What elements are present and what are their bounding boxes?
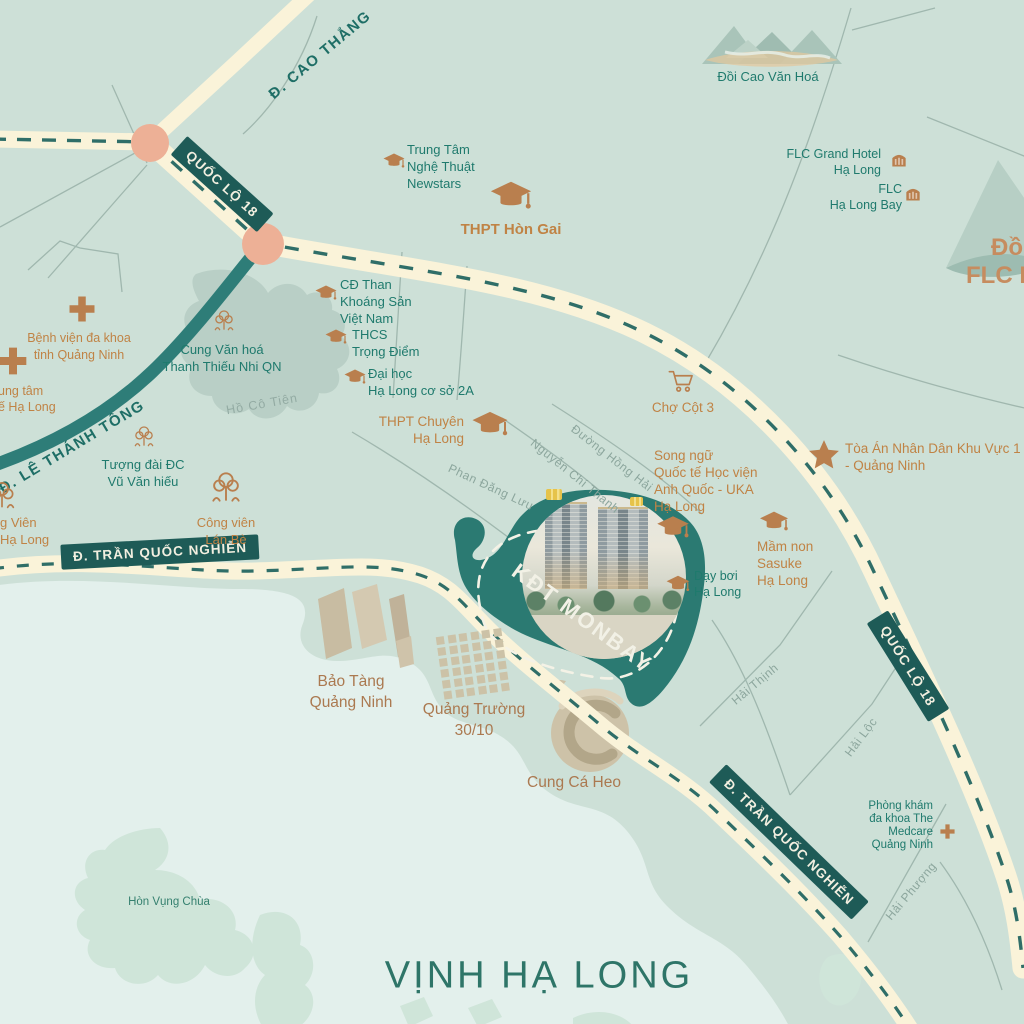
cung-van-hoa-thieu-nhi-label: Cung Văn hoáThanh Thiếu Nhi QN: [163, 341, 282, 375]
park-trees-icon: [0, 479, 19, 513]
hotel-icon: [889, 149, 909, 169]
hospital-cross-icon: [939, 823, 956, 840]
graduation-cap-icon: [324, 326, 348, 350]
graduation-cap-icon: [314, 282, 338, 306]
edge-label-doi-flc-line1: Đồi: [991, 234, 1024, 262]
hotel-icon: [903, 183, 923, 203]
graduation-cap-icon: [382, 150, 406, 174]
cho-cot-3-label: Chợ Cột 3: [652, 399, 714, 416]
water-label-ho-co-tien: Hồ Cô Tiên: [225, 391, 299, 417]
tuong-dai-vu-van-hieu-label: Tượng đài ĐCVũ Văn hiếu: [102, 456, 185, 490]
day-boi-ha-long-label: Dạy bơiHạ Long: [694, 568, 741, 600]
graduation-cap-icon: [655, 511, 691, 547]
thpt-hon-gai-label: THPT Hòn Gai: [461, 220, 562, 240]
dai-hoc-ha-long-label: Đại họcHạ Long cơ sở 2A: [368, 365, 474, 399]
flc-ha-long-bay-label: FLCHạ Long Bay: [830, 181, 902, 213]
phong-kham-medcare-label: Phòng khámđa khoa TheMedcareQuảng Ninh: [868, 800, 933, 852]
water-label-vinh-ha-long: VỊNH HẠ LONG: [385, 955, 693, 998]
graduation-cap-icon: [488, 175, 534, 221]
tree-icon: [131, 424, 157, 450]
road-label-cao-thang: Đ. CAO THẮNG: [266, 7, 375, 102]
star-icon: [807, 438, 841, 472]
graduation-cap-icon: [470, 406, 510, 446]
graduation-cap-icon: [665, 572, 691, 598]
street-label: Hải Thịnh: [729, 660, 781, 707]
graduation-cap-icon: [758, 507, 790, 539]
monbay-location-map: { "palette":{ "land":"#cde0d7","sea":"#e…: [0, 0, 1024, 1024]
flc-grand-hotel-label: FLC Grand HotelHạ Long: [787, 146, 881, 178]
song-ngu-uka-label: Song ngữQuốc tế Học việnAnh Quốc - UKAHạ…: [654, 447, 758, 515]
cong-vien-lan-be-label: Công viênLán Bè: [197, 514, 256, 548]
road-badge-quoc-lo-18-nw: QUỐC LỘ 18: [171, 136, 274, 232]
mam-non-sasuke-label: Mầm nonSasukeHạ Long: [757, 538, 813, 589]
monbay-area-label: KĐT MONBAY: [507, 558, 657, 677]
thpt-chuyen-ha-long-label: THPT ChuyênHạ Long: [379, 413, 464, 447]
cong-vien-ha-long-label: g ViênHạ Long: [0, 514, 49, 548]
street-label: Hải Lộc: [842, 715, 880, 759]
cd-than-khoang-san-label: CĐ ThanKhoáng SảnViệt Nam: [340, 276, 412, 327]
tree-icon: [211, 308, 237, 334]
road-badge-tran-quoc-nghien-se: Đ. TRẦN QUỐC NGHIỄN: [709, 764, 869, 920]
thcs-trong-diem-label: THCSTrọng Điểm: [352, 326, 419, 360]
graduation-cap-icon: [343, 366, 367, 390]
bao-tang-quang-ninh-label: Bảo TàngQuảng Ninh: [310, 671, 393, 713]
shopping-cart-icon: [667, 367, 695, 395]
water-label-hon-vung-chua: Hòn Vụng Chùa: [128, 896, 210, 908]
hospital-cross-icon: [0, 345, 29, 377]
street-label: Hải Phượng: [883, 859, 940, 923]
benh-vien-da-khoa-label: Bệnh viện đa khoatỉnh Quảng Ninh: [27, 330, 131, 364]
trung-tam-y-te-label: ung tâmế Hạ Long: [0, 383, 56, 415]
cung-ca-heo-label: Cung Cá Heo: [527, 772, 621, 793]
street-label: Phan Đăng Lưu: [446, 461, 536, 513]
park-trees-icon: [207, 469, 245, 507]
doi-cao-van-hoa-label: Đồi Cao Văn Hoá: [717, 68, 818, 85]
quang-truong-30-10-label: Quảng Trường30/10: [423, 699, 525, 741]
edge-label-doi-flc-line2: FLC Hạ Long: [966, 262, 1024, 290]
trung-tam-nghe-thuat-newstars-label: Trung TâmNghệ ThuậtNewstars: [407, 141, 475, 192]
hospital-cross-icon: [67, 294, 97, 324]
road-badge-quoc-lo-18-se: QUỐC LỘ 18: [867, 610, 950, 721]
toa-an-nhan-dan-label: Tòa Án Nhân Dân Khu Vực 1- Quảng Ninh: [845, 440, 1021, 474]
